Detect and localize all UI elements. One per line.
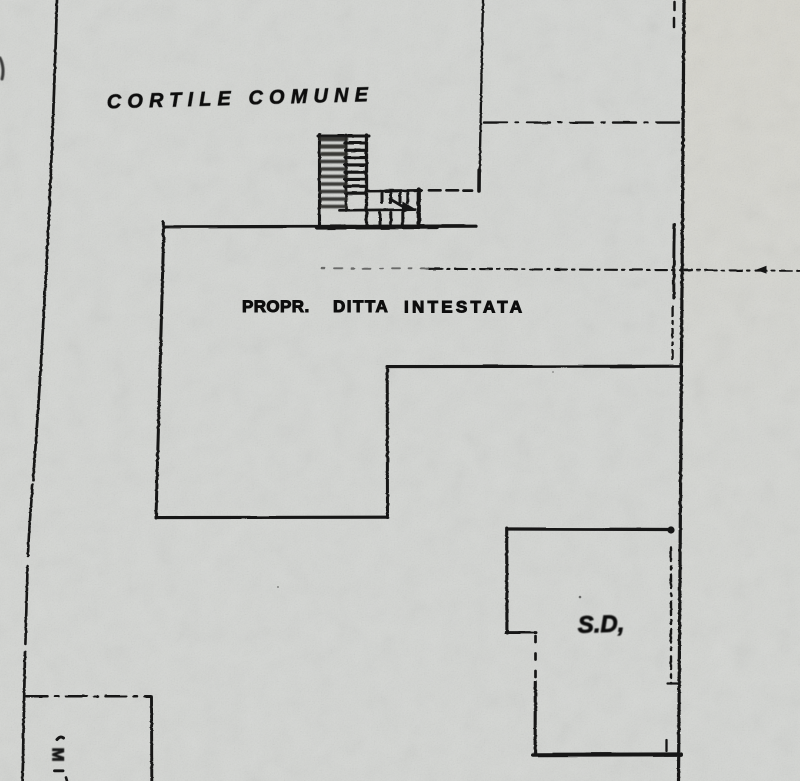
svg-text:DITTA: DITTA bbox=[333, 297, 389, 316]
svg-text:S.D,: S.D, bbox=[577, 610, 625, 639]
svg-text:INTESTATA: INTESTATA bbox=[404, 298, 525, 317]
svg-text:PROPR.: PROPR. bbox=[242, 297, 310, 316]
svg-text:M: M bbox=[49, 748, 68, 762]
